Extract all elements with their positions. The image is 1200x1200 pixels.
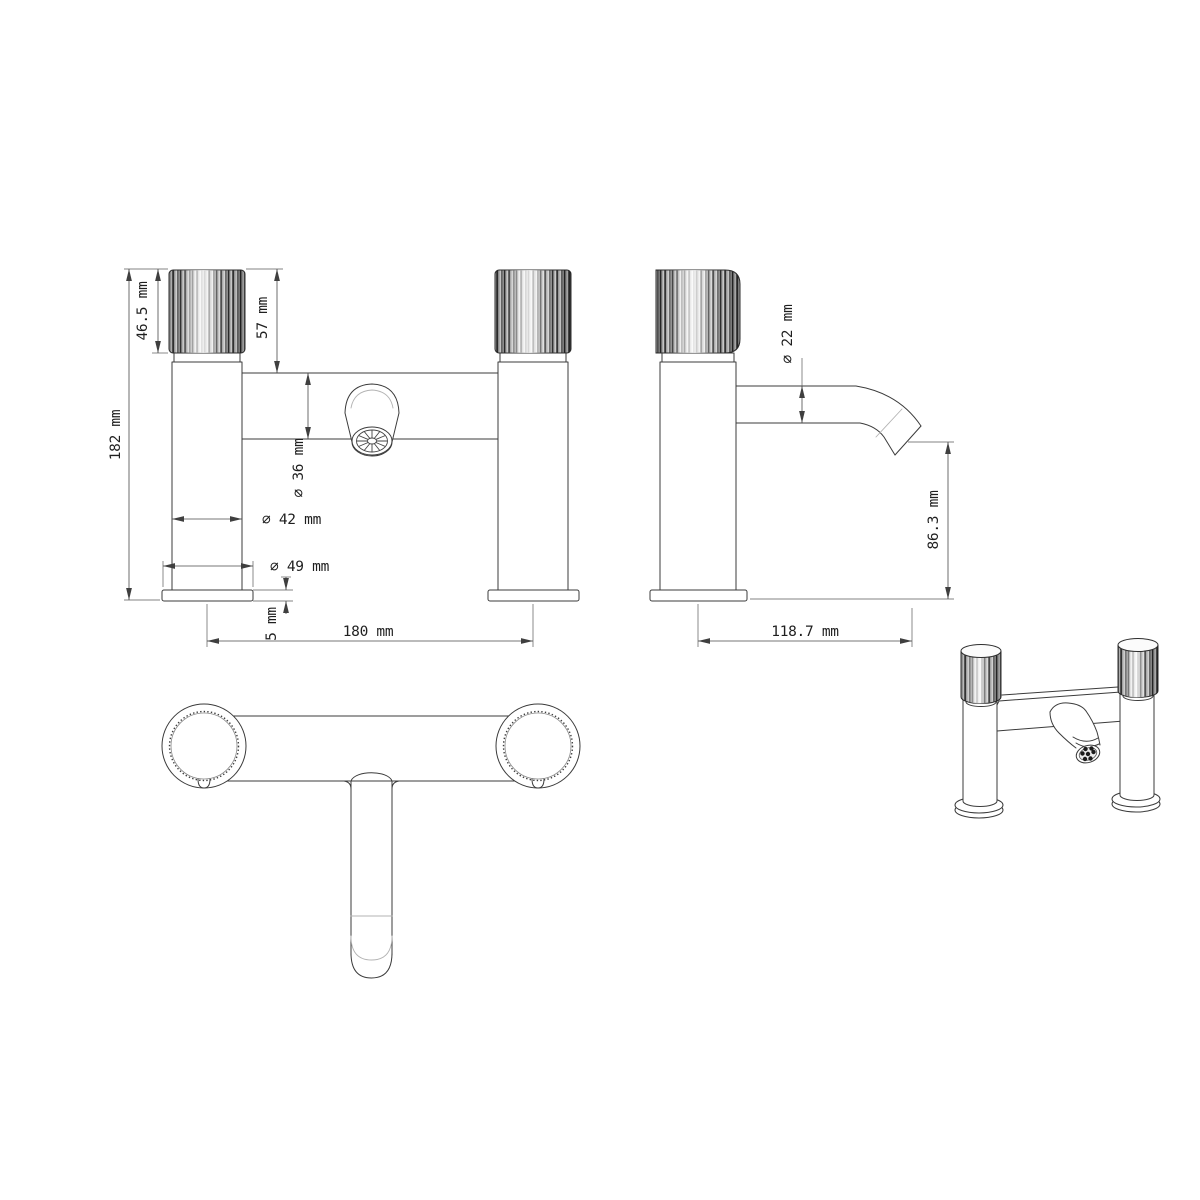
dim-label-top-to-body: 57 mm [255,296,271,339]
dim-body-diameter: ∅ 36 mm [291,373,308,498]
dim-label-spout-reach: 118.7 mm [771,624,839,640]
dim-label-column-diameter: ∅ 42 mm [262,512,322,528]
dim-base-plate-height: 5 mm [253,577,293,641]
dim-label-base-diameter: ∅ 49 mm [270,559,330,575]
handle-top-face [961,645,1001,658]
technical-drawing: 182 mm 46.5 mm 57 mm ∅ 36 mm ∅ 42 mm ∅ 4… [0,0,1200,1200]
dim-label-body-diameter: ∅ 36 mm [291,438,307,498]
side-view: ∅ 22 mm 86.3 mm 118.7 mm [650,270,954,647]
handle-highlight [656,270,740,353]
dim-label-total-height: 182 mm [108,409,124,460]
dim-spout-reach: 118.7 mm [698,604,912,647]
dim-spout-diameter: ∅ 22 mm [780,304,802,423]
body-bar-plan [204,716,538,781]
spout-front [345,384,399,456]
right-handle-plan [496,704,580,788]
knurl-ring [504,712,573,781]
left-handle-plan [162,704,246,788]
spout-plan [344,773,399,978]
dim-pillar-centres: 180 mm [207,604,533,647]
right-pillar [488,270,579,601]
handle-highlight [961,651,1001,704]
left-pillar [162,270,253,601]
dim-label-handle-height: 46.5 mm [135,281,151,341]
handle-highlight [1118,645,1158,698]
left-pillar-3d [955,645,1003,819]
front-view: 182 mm 46.5 mm 57 mm ∅ 36 mm ∅ 42 mm ∅ 4… [108,269,579,647]
handle-highlight [495,270,571,353]
dim-spout-outlet-height: 86.3 mm [750,442,954,599]
plan-view [162,704,580,978]
spout-3d [1050,703,1102,766]
dim-label-spout-outlet-height: 86.3 mm [926,490,942,550]
technical-drawing-page: 182 mm 46.5 mm 57 mm ∅ 36 mm ∅ 42 mm ∅ 4… [0,0,1200,1200]
dim-handle-top-to-body: 57 mm [246,269,283,373]
handle-highlight [169,270,245,353]
dim-label-base-plate-height: 5 mm [264,607,280,641]
dim-handle-height: 46.5 mm [135,269,168,353]
knurl-ring [170,712,239,781]
side-pillar [650,270,747,601]
perspective-view [955,639,1160,819]
handle-top-face [1118,639,1158,652]
right-pillar-3d [1112,639,1160,813]
dim-label-pillar-centres: 180 mm [343,624,394,640]
spout-side [736,386,921,455]
dim-label-spout-diameter: ∅ 22 mm [780,304,796,364]
